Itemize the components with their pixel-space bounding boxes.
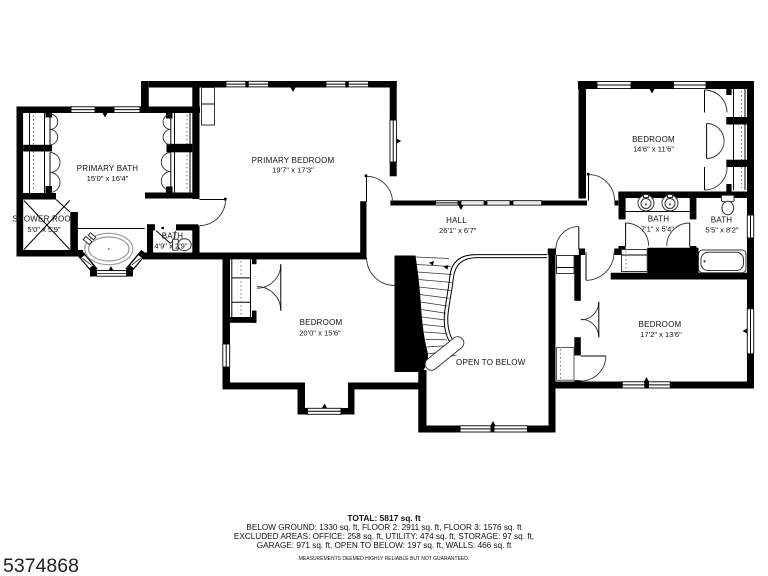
svg-text:BEDROOM: BEDROOM (632, 135, 675, 144)
svg-text:5'5" x 8'2": 5'5" x 8'2" (705, 226, 739, 235)
svg-text:26'1" x 6'7": 26'1" x 6'7" (439, 226, 477, 235)
svg-text:20'0" x 15'6": 20'0" x 15'6" (299, 329, 341, 338)
svg-text:OPEN TO BELOW: OPEN TO BELOW (456, 358, 526, 367)
svg-text:MEASUREMENTS DEEMED HIGHLY REL: MEASUREMENTS DEEMED HIGHLY RELIABLE BUT … (299, 556, 470, 562)
svg-text:EXCLUDED AREAS: OFFICE: 258 sq: EXCLUDED AREAS: OFFICE: 258 sq. ft, UTIL… (234, 532, 534, 541)
svg-text:14'6" x 11'6": 14'6" x 11'6" (633, 145, 674, 154)
svg-text:19'7" x 17'3": 19'7" x 17'3" (272, 166, 314, 175)
svg-text:BATH: BATH (162, 232, 184, 241)
svg-text:7'1" x 5'4": 7'1" x 5'4" (641, 225, 675, 234)
svg-text:PRIMARY BATH: PRIMARY BATH (77, 164, 139, 173)
svg-text:GARAGE: 971 sq. ft, OPEN TO BE: GARAGE: 971 sq. ft, OPEN TO BELOW: 197 s… (257, 541, 512, 550)
svg-text:TOTAL: 5817 sq. ft: TOTAL: 5817 sq. ft (347, 513, 420, 523)
svg-text:5'0" x 5'9": 5'0" x 5'9" (27, 225, 61, 234)
svg-text:BATH: BATH (711, 216, 733, 225)
svg-text:BEDROOM: BEDROOM (300, 318, 343, 327)
svg-text:SHOWER ROOM: SHOWER ROOM (12, 215, 77, 224)
svg-text:17'2" x 13'6": 17'2" x 13'6" (640, 330, 682, 339)
svg-text:BEDROOM: BEDROOM (639, 320, 682, 329)
svg-text:PRIMARY BEDROOM: PRIMARY BEDROOM (252, 156, 335, 165)
svg-text:BATH: BATH (648, 215, 670, 224)
svg-text:HALL: HALL (446, 216, 467, 225)
svg-text:4'9" x 2'9": 4'9" x 2'9" (154, 242, 188, 251)
svg-text:15'0" x 16'4": 15'0" x 16'4" (87, 174, 129, 183)
svg-text:5374868: 5374868 (3, 555, 79, 576)
svg-text:BELOW GROUND: 1330 sq. ft, FLO: BELOW GROUND: 1330 sq. ft, FLOOR 2: 2911… (246, 523, 522, 532)
